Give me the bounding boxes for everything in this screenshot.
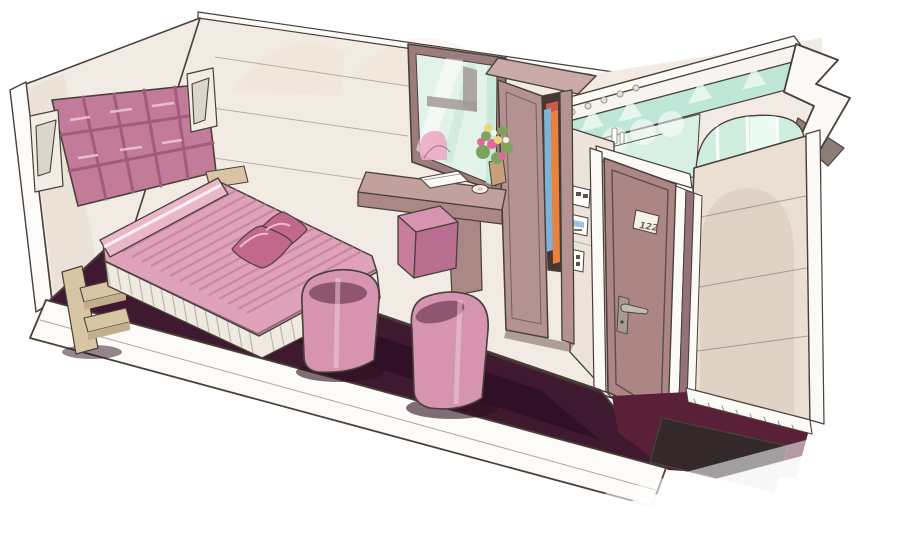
dish-center: [477, 187, 483, 191]
leaf: [476, 145, 490, 159]
flower: [498, 152, 506, 160]
downlight: [617, 91, 623, 97]
flower: [503, 137, 509, 143]
light-switch-panel: [572, 186, 590, 208]
hanging-clothes: [544, 101, 560, 264]
illustration-canvas: 122: [0, 0, 900, 549]
thermostat-button: [574, 229, 582, 231]
flower: [477, 138, 485, 146]
chair-highlight: [336, 278, 338, 368]
flower: [491, 130, 497, 136]
downlight: [585, 103, 591, 109]
arch-shadow: [700, 188, 794, 418]
keyhole: [620, 320, 623, 323]
switch-button: [583, 194, 588, 198]
wall-sconce-right: [187, 68, 217, 132]
flower: [484, 124, 492, 132]
downlight: [633, 85, 639, 91]
handle-plate: [617, 296, 629, 334]
hotel-room-illustration: 122: [0, 0, 900, 549]
wardrobe-right-stile: [560, 90, 574, 344]
socket-dot: [576, 262, 580, 266]
downlight: [601, 97, 607, 103]
dish: [472, 185, 488, 194]
toiletry-bottle: [620, 132, 624, 144]
wall-sconce-left: [30, 110, 63, 192]
socket-dot: [576, 255, 580, 259]
leaf: [498, 126, 508, 136]
tub-chair-left: [296, 270, 384, 382]
switch-button: [576, 192, 581, 196]
ottoman-side: [414, 222, 458, 278]
flower: [494, 136, 502, 144]
bathroom-front-wall: [686, 130, 824, 424]
tile-scallop: [658, 111, 684, 137]
cube-ottoman: [398, 206, 458, 278]
